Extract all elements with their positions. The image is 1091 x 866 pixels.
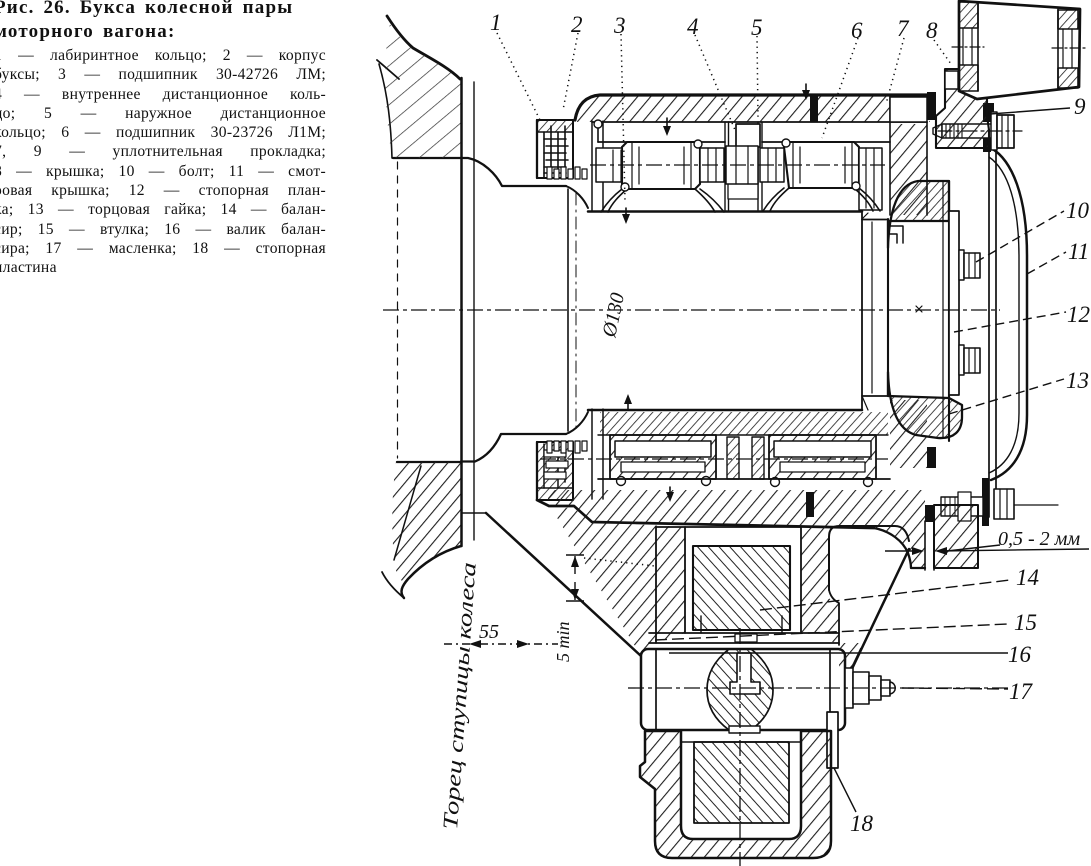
svg-text:Торец ступицы колеса: Торец ступицы колеса bbox=[438, 561, 481, 830]
svg-text:11: 11 bbox=[1068, 239, 1089, 264]
svg-text:13: 13 bbox=[1066, 368, 1089, 393]
svg-text:10: 10 bbox=[1066, 198, 1090, 223]
svg-text:16: 16 bbox=[1008, 642, 1032, 667]
svg-text:17: 17 bbox=[1009, 679, 1034, 704]
svg-text:12: 12 bbox=[1067, 302, 1090, 327]
svg-text:Ø130: Ø130 bbox=[598, 291, 629, 340]
svg-text:18: 18 bbox=[850, 811, 874, 836]
svg-text:55: 55 bbox=[479, 621, 499, 643]
svg-text:1: 1 bbox=[490, 10, 502, 35]
svg-text:15: 15 bbox=[1014, 610, 1037, 635]
svg-text:5 min: 5 min bbox=[553, 622, 573, 663]
svg-text:3: 3 bbox=[613, 13, 626, 38]
svg-text:8: 8 bbox=[926, 18, 938, 43]
svg-text:7: 7 bbox=[897, 16, 910, 41]
svg-text:4: 4 bbox=[687, 14, 699, 39]
svg-text:0,5 - 2 мм: 0,5 - 2 мм bbox=[998, 528, 1080, 550]
svg-text:5: 5 bbox=[751, 15, 763, 40]
svg-text:6: 6 bbox=[851, 18, 863, 43]
svg-text:14: 14 bbox=[1016, 565, 1039, 590]
svg-text:9: 9 bbox=[1074, 94, 1086, 119]
svg-text:2: 2 bbox=[571, 12, 583, 37]
